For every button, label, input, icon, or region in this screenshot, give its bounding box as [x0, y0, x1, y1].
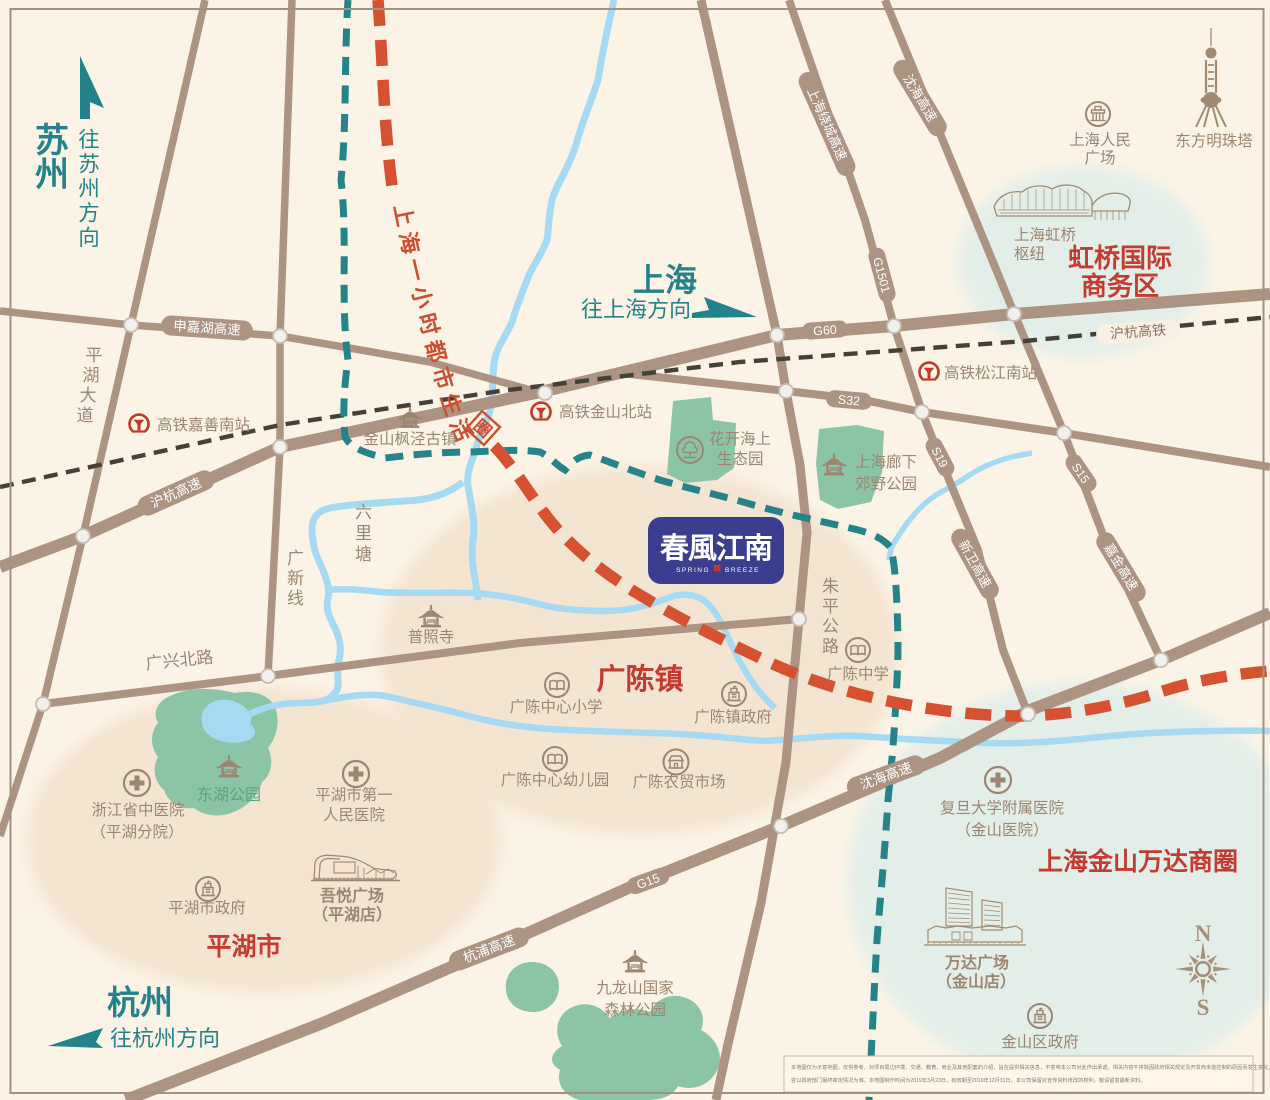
svg-text:花开海上: 花开海上 — [709, 430, 771, 448]
svg-text:普照寺: 普照寺 — [408, 628, 455, 646]
svg-text:广陈镇: 广陈镇 — [596, 662, 683, 696]
svg-text:上海虹桥: 上海虹桥 — [1014, 226, 1077, 244]
svg-text:S: S — [1197, 995, 1210, 1020]
svg-text:杭州: 杭州 — [107, 984, 173, 1022]
svg-text:万达广场: 万达广场 — [944, 953, 1009, 972]
svg-text:上海人民: 上海人民 — [1069, 131, 1131, 149]
svg-text:浙江省中医院: 浙江省中医院 — [91, 800, 184, 819]
svg-text:广陈农贸市场: 广陈农贸市场 — [632, 773, 725, 791]
svg-text:S32: S32 — [837, 393, 860, 409]
svg-text:BREEZE: BREEZE — [725, 567, 760, 574]
svg-text:（平湖分院）: （平湖分院） — [90, 822, 183, 841]
svg-text:上海廊下: 上海廊下 — [855, 453, 917, 471]
svg-text:广场: 广场 — [1084, 149, 1115, 167]
svg-text:九龙山国家: 九龙山国家 — [596, 979, 674, 997]
svg-text:六里塘: 六里塘 — [355, 503, 372, 564]
svg-text:（金山店）: （金山店） — [936, 972, 1016, 991]
svg-text:复旦大学附属医院: 复旦大学附属医院 — [940, 798, 1064, 817]
svg-text:金山枫泾古镇: 金山枫泾古镇 — [363, 430, 456, 448]
svg-text:广陈中心幼儿园: 广陈中心幼儿园 — [501, 771, 610, 789]
svg-text:人民医院: 人民医院 — [323, 805, 385, 824]
svg-text:平湖市第一: 平湖市第一 — [315, 786, 393, 804]
svg-text:往苏州方向: 往苏州方向 — [78, 128, 100, 250]
svg-text:东方明珠塔: 东方明珠塔 — [1175, 132, 1253, 150]
svg-text:高铁金山北站: 高铁金山北站 — [559, 403, 652, 421]
svg-text:吾悦广场: 吾悦广场 — [320, 886, 384, 905]
svg-text:金山区政府: 金山区政府 — [1001, 1033, 1079, 1051]
svg-text:往杭州方向: 往杭州方向 — [110, 1026, 220, 1051]
svg-text:N: N — [1195, 921, 1212, 946]
svg-text:高铁松江南站: 高铁松江南站 — [944, 364, 1037, 382]
svg-text:上海: 上海 — [633, 262, 697, 298]
svg-text:G60: G60 — [813, 323, 838, 339]
svg-text:商务区: 商务区 — [1081, 271, 1159, 301]
svg-text:（金山医院）: （金山医院） — [955, 820, 1048, 839]
svg-text:东湖公园: 东湖公园 — [197, 786, 261, 804]
svg-text:广陈镇政府: 广陈镇政府 — [694, 708, 772, 726]
svg-text:往上海方向: 往上海方向 — [581, 297, 691, 322]
svg-text:苏州: 苏州 — [35, 122, 69, 194]
svg-text:上海金山万达商圈: 上海金山万达商圈 — [1038, 847, 1238, 876]
svg-text:平湖市政府: 平湖市政府 — [168, 899, 246, 917]
svg-text:SPRING: SPRING — [676, 567, 710, 574]
svg-text:广新线: 广新线 — [287, 549, 304, 608]
svg-text:朱平公路: 朱平公路 — [822, 577, 839, 656]
svg-text:郊野公园: 郊野公园 — [855, 475, 917, 493]
svg-text:春風江南: 春風江南 — [660, 532, 772, 565]
svg-text:生态园: 生态园 — [717, 450, 764, 468]
svg-text:虹桥国际: 虹桥国际 — [1068, 243, 1172, 273]
svg-text:广陈中学: 广陈中学 — [827, 665, 889, 683]
svg-text:平湖市: 平湖市 — [206, 932, 281, 961]
svg-text:森林公园: 森林公园 — [604, 1001, 666, 1019]
svg-text:高铁嘉善南站: 高铁嘉善南站 — [157, 416, 250, 434]
svg-text:（平湖店）: （平湖店） — [312, 905, 392, 924]
svg-text:广陈中心小学: 广陈中心小学 — [509, 698, 602, 716]
svg-text:枢纽: 枢纽 — [1014, 245, 1045, 263]
